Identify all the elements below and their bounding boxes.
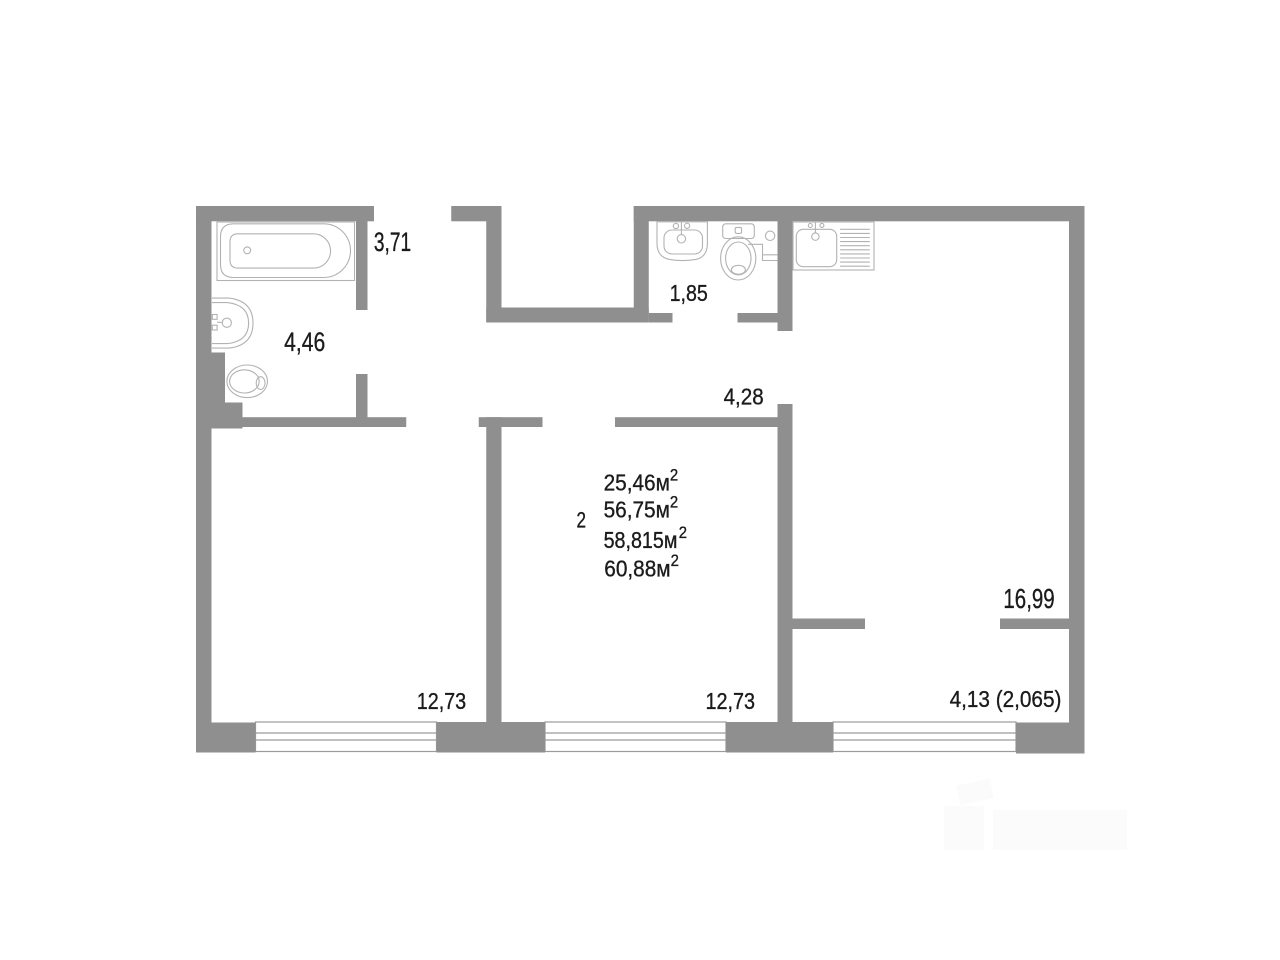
svg-text:16,99: 16,99 <box>1003 583 1054 614</box>
svg-text:56,75м: 56,75м <box>604 497 670 523</box>
svg-text:25,46м: 25,46м <box>604 470 670 496</box>
svg-text:4,28: 4,28 <box>724 384 764 410</box>
svg-text:58,815м: 58,815м <box>604 527 678 553</box>
svg-text:2: 2 <box>679 523 687 542</box>
svg-text:4,13 (2,065): 4,13 (2,065) <box>950 686 1062 712</box>
svg-text:60,88м: 60,88м <box>604 555 670 581</box>
svg-text:2: 2 <box>671 551 679 570</box>
svg-text:2: 2 <box>670 492 678 511</box>
svg-text:3,71: 3,71 <box>374 227 411 257</box>
svg-text:1,85: 1,85 <box>670 280 708 306</box>
svg-text:2: 2 <box>670 465 678 484</box>
svg-text:12,73: 12,73 <box>706 688 756 714</box>
svg-text:4,46: 4,46 <box>284 327 325 357</box>
svg-text:2: 2 <box>577 508 587 533</box>
svg-text:12,73: 12,73 <box>417 688 467 714</box>
